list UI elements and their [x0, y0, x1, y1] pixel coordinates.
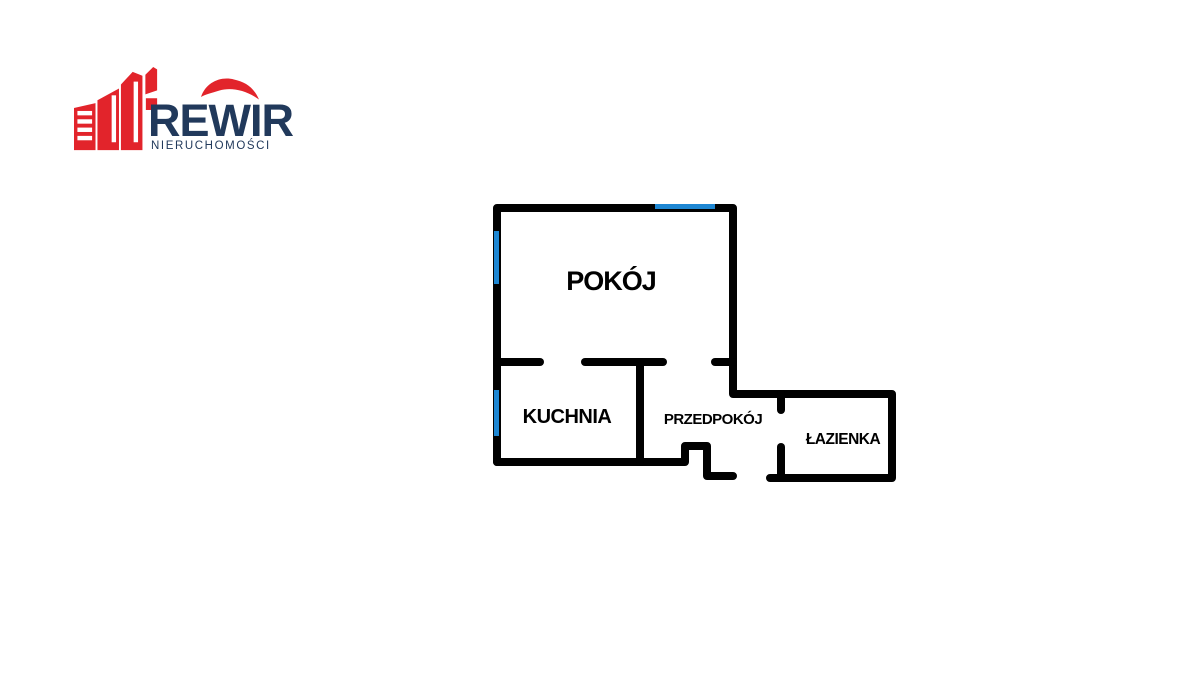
- floor-plan-page: { "page": { "background_color": "#ffffff…: [0, 0, 1200, 675]
- room-label-lazienka: ŁAZIENKA: [743, 431, 943, 449]
- room-label-pokoj: POKÓJ: [511, 266, 711, 297]
- room-label-przedpokoj: PRZEDPOKÓJ: [613, 411, 813, 428]
- floor-plan-drawing: [0, 0, 1200, 675]
- window-markers: [497, 207, 716, 437]
- wall-bottom-with-entrance-recess: [497, 446, 733, 476]
